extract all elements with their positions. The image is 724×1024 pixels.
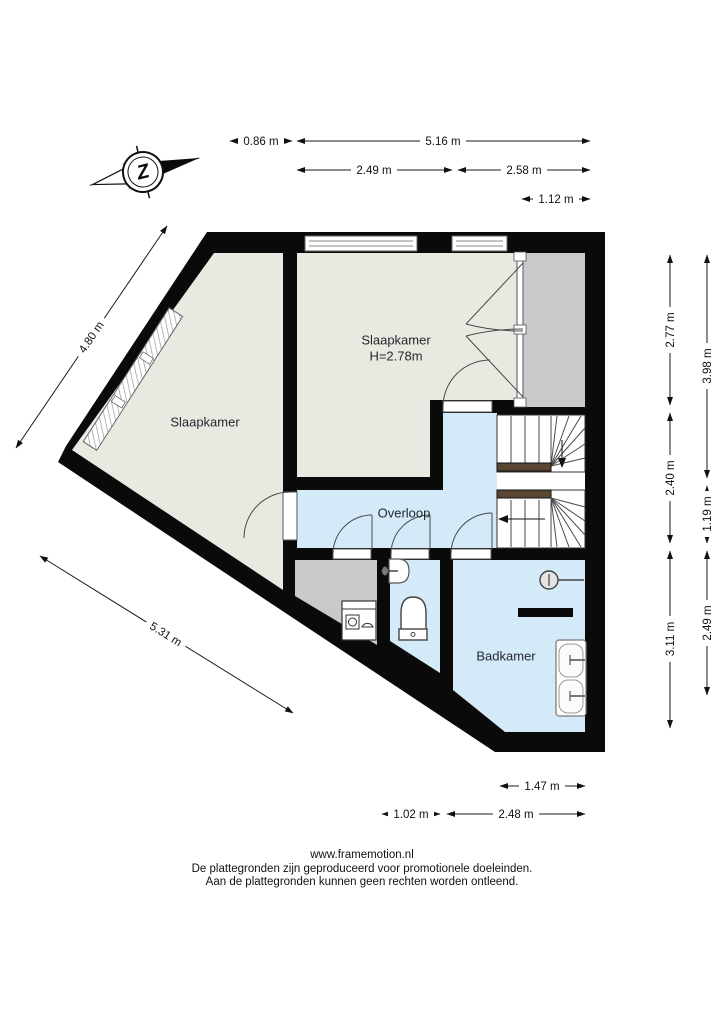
dimension-right-outer-1: 1.19 m	[700, 486, 714, 543]
dimension-top-2: 2.49 m	[297, 163, 452, 177]
shower-partition-wall	[518, 608, 573, 617]
svg-text:2.48 m: 2.48 m	[498, 809, 533, 821]
svg-text:2.49 m: 2.49 m	[356, 165, 391, 177]
footer-disclaimer-1: De plattegronden zijn geproduceerd voor …	[0, 863, 724, 877]
dimension-bottom-0: 1.47 m	[500, 779, 585, 793]
window-top-left	[305, 236, 417, 251]
dimension-right-inner-0: 2.77 m	[663, 255, 677, 405]
footer-disclaimer-2: Aan de plattegronden kunnen geen rechten…	[0, 876, 724, 890]
svg-text:1.47 m: 1.47 m	[524, 781, 559, 793]
room-label-bedroom-left: Slaapkamer	[170, 414, 240, 429]
room-label-landing: Overloop	[378, 505, 431, 520]
room-label-bedroom-main: Slaapkamer	[361, 332, 431, 347]
svg-text:2.49 m: 2.49 m	[702, 605, 714, 640]
svg-text:2.40 m: 2.40 m	[665, 460, 677, 495]
room-floor-wardrobe	[520, 253, 585, 407]
dimension-top-3: 2.58 m	[458, 163, 590, 177]
footer-website: www.framemotion.nl	[0, 849, 724, 863]
toilet-icon	[399, 597, 427, 640]
svg-text:3.98 m: 3.98 m	[702, 348, 714, 383]
dimension-right-outer-2: 2.49 m	[700, 551, 714, 695]
dimension-bottom-2: 2.48 m	[447, 807, 585, 821]
svg-text:2.77 m: 2.77 m	[665, 312, 677, 347]
dimension-bottom-1: 1.02 m	[382, 807, 440, 821]
room-label-bedroom-main-height: H=2.78m	[369, 348, 422, 363]
washing-machine-icon	[342, 601, 376, 640]
svg-text:0.86 m: 0.86 m	[243, 136, 278, 148]
svg-text:1.12 m: 1.12 m	[538, 194, 573, 206]
window-top-right	[452, 236, 507, 251]
dimension-top-0: 0.86 m	[230, 134, 292, 148]
stair-flight-lower	[497, 490, 585, 548]
double-washbasin-icon	[556, 640, 586, 716]
dimension-top-1: 5.16 m	[297, 134, 590, 148]
svg-text:1.02 m: 1.02 m	[393, 809, 428, 821]
stair-flight-upper	[497, 415, 585, 472]
footer: www.framemotion.nl De plattegronden zijn…	[0, 849, 724, 890]
dimension-right-outer-0: 3.98 m	[700, 255, 714, 478]
svg-text:5.16 m: 5.16 m	[425, 136, 460, 148]
compass-icon: Z	[83, 132, 206, 212]
dimension-right-inner-1: 2.40 m	[663, 413, 677, 543]
dimension-top-4: 1.12 m	[522, 192, 590, 206]
room-label-bathroom: Badkamer	[476, 648, 536, 663]
svg-text:2.58 m: 2.58 m	[506, 165, 541, 177]
svg-text:5.31 m: 5.31 m	[147, 621, 183, 650]
svg-text:3.11 m: 3.11 m	[665, 622, 677, 656]
dimension-right-inner-2: 3.11 m	[663, 551, 677, 728]
svg-text:1.19 m: 1.19 m	[702, 496, 714, 531]
